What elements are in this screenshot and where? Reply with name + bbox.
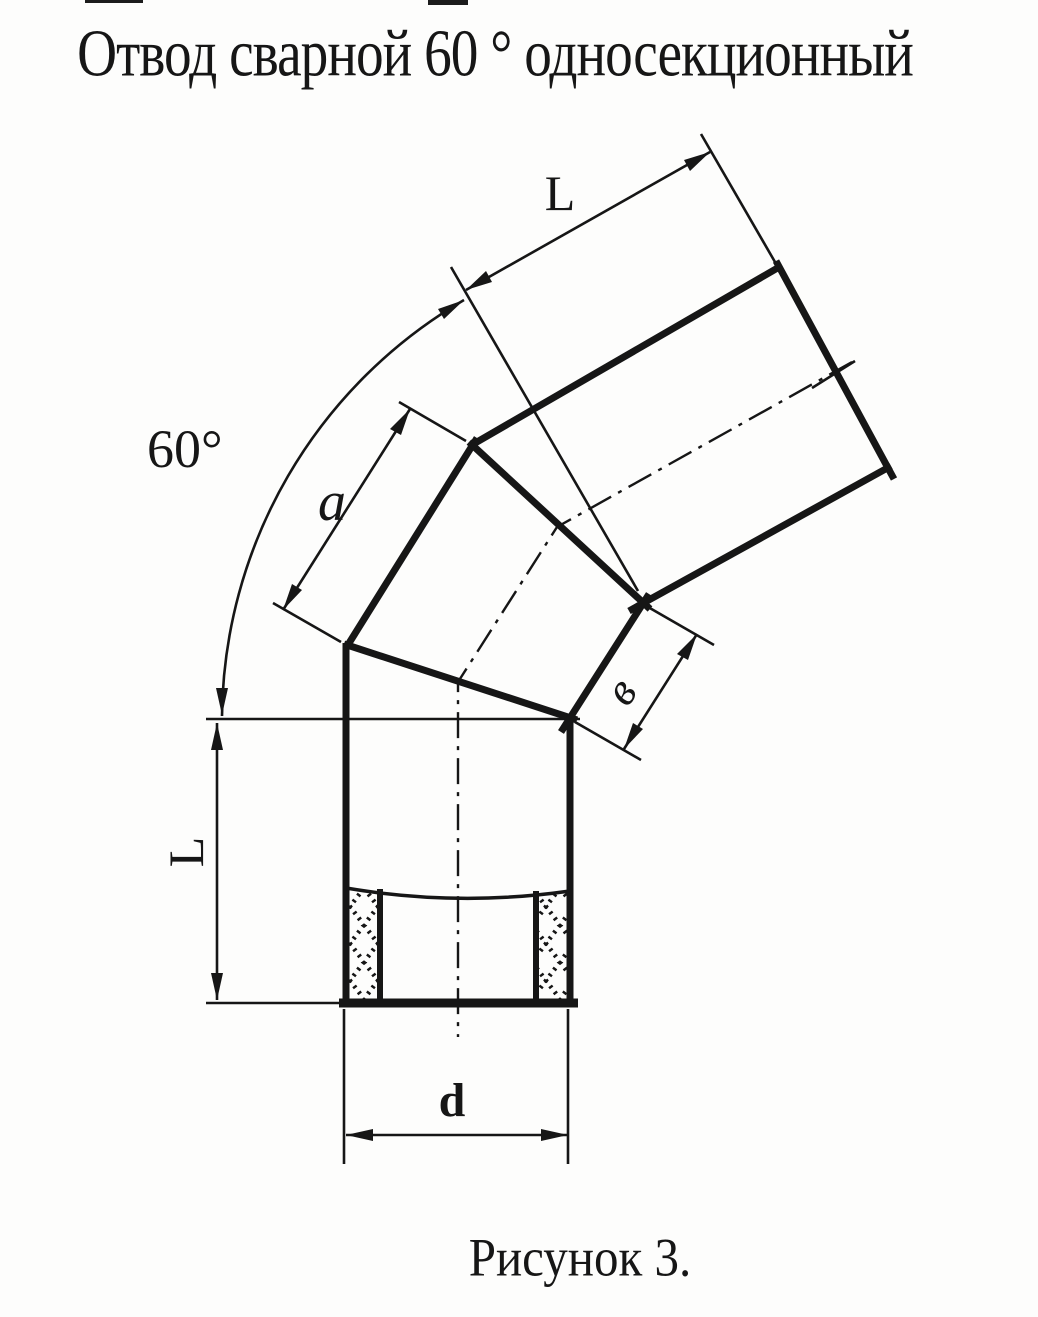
arrowhead <box>466 271 492 290</box>
dim-label-d: d <box>439 1074 466 1127</box>
dim-label-a: a <box>318 471 346 533</box>
lower-weld-seam <box>344 644 577 720</box>
scanned-drawing-page: Отвод сварной 60 ° односекционный <box>0 0 1038 1317</box>
figure-caption: Рисунок 3. <box>280 1226 880 1289</box>
arrowhead <box>283 584 302 610</box>
arrowhead <box>211 723 223 750</box>
dim-label-lower-L: L <box>158 837 214 868</box>
arrowhead <box>211 973 223 1000</box>
hatch-left <box>348 890 378 1002</box>
arrowhead <box>216 688 228 715</box>
arrowhead <box>346 1129 373 1141</box>
extension-line <box>701 134 775 262</box>
arrowhead <box>624 723 643 749</box>
pipe-outline <box>339 261 894 1004</box>
middle-section-outer-wall <box>346 438 477 648</box>
dim-label-angle: 60° <box>147 419 223 479</box>
upper-pipe-outer-wall <box>470 266 781 446</box>
elbow-diagram: L 60° a в <box>0 0 1038 1317</box>
dimension-line <box>466 152 710 290</box>
upper-pipe-inner-wall <box>629 466 891 611</box>
arrowhead <box>684 152 710 171</box>
dim-label-upper-L: L <box>545 165 576 221</box>
arrowhead <box>677 634 697 660</box>
arrowhead <box>390 409 410 435</box>
arrowhead <box>541 1129 568 1141</box>
hatch-right <box>538 892 568 1002</box>
extension-line <box>648 607 714 645</box>
arrowhead <box>438 300 464 319</box>
dim-bend-angle: 60° <box>147 300 464 716</box>
extension-line <box>399 402 466 441</box>
dim-inner-side: в <box>575 607 714 760</box>
dim-diameter: d <box>344 1009 568 1164</box>
extension-line <box>451 267 638 591</box>
dim-label-v: в <box>594 668 647 714</box>
upper-pipe-end-face <box>776 261 894 479</box>
